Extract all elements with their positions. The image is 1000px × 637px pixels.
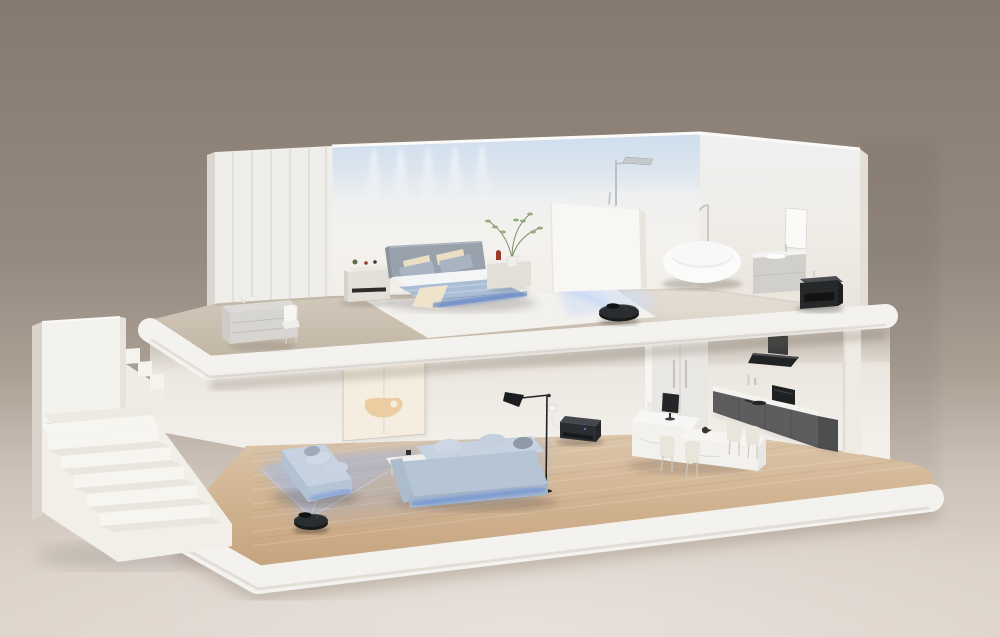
dresser-mug <box>364 261 368 265</box>
robot-lower-sensor <box>316 516 318 518</box>
dock-status-led <box>584 428 586 430</box>
lamp-pole <box>546 395 547 491</box>
lamp-joint <box>547 394 551 398</box>
stair-parapet <box>42 317 120 424</box>
chair-2-back <box>685 441 700 464</box>
dresser-plant <box>353 260 358 265</box>
art-blob-hole <box>391 401 398 408</box>
vanity-basin <box>764 253 786 259</box>
monitor-screen <box>662 393 679 413</box>
scene-3d-render <box>0 0 1000 637</box>
robot-upper-sensor <box>625 307 627 309</box>
shower-partition <box>551 203 647 292</box>
plant-pot <box>507 256 518 267</box>
hand-shower <box>609 193 610 204</box>
dresser-front <box>348 269 390 302</box>
dresser-side <box>344 270 348 302</box>
robot-lower-lidar-turret <box>299 512 312 518</box>
power-outlet <box>549 405 556 411</box>
chair-4-back <box>746 426 760 446</box>
upper-step-2 <box>138 361 152 377</box>
glass-bottle <box>754 378 756 385</box>
upper-step-1 <box>126 348 140 364</box>
bathtub <box>662 241 742 290</box>
robot-vacuum-upper <box>599 303 639 325</box>
upper-step-3 <box>150 374 164 390</box>
chair-1-back <box>660 436 675 459</box>
tub-rim <box>671 242 733 266</box>
wall-mirror <box>785 208 807 249</box>
right-wall-outer-side <box>860 149 868 313</box>
house-cutaway-illustration <box>0 0 1000 637</box>
partition-wall <box>551 203 641 292</box>
cabinet-end-panel <box>818 416 838 452</box>
robot-upper-lidar-turret <box>607 303 620 309</box>
console-object <box>406 450 411 455</box>
desk-figurine <box>250 297 254 301</box>
monitor-base <box>665 418 675 421</box>
drinking-glass <box>648 403 651 411</box>
frying-pan <box>752 401 766 405</box>
bottle <box>747 374 750 385</box>
stair-side-face <box>32 322 42 520</box>
chair-3-back <box>727 422 742 443</box>
dresser-object <box>373 260 377 264</box>
wardrobe-side <box>207 152 215 311</box>
red-figurine <box>496 250 501 260</box>
parapet-edge <box>120 317 126 414</box>
